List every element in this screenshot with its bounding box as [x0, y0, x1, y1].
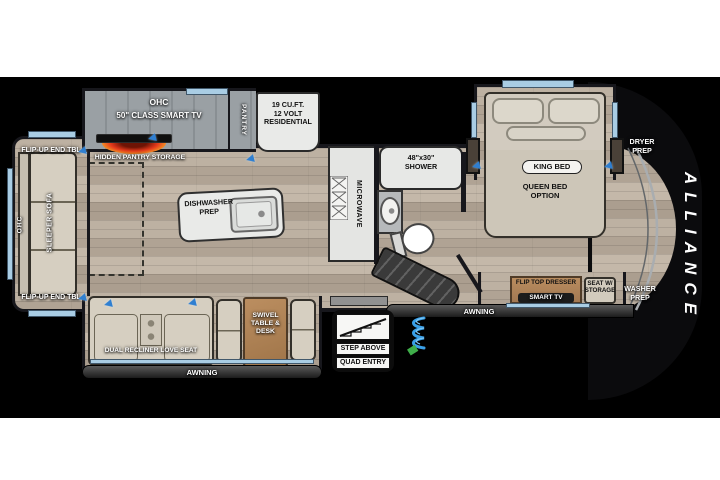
step-above-label: STEP ABOVE	[336, 343, 390, 355]
swivel-table-desk-label: SWIVEL TABLE & DESK	[243, 312, 288, 336]
window-above-kitchen	[186, 88, 228, 95]
window-bed-top	[502, 80, 574, 88]
bed-pillow-left	[492, 98, 544, 124]
step-diagram-icon	[336, 314, 390, 340]
shower-label: 48"x30" SHOWER	[381, 154, 461, 171]
window-living-slide	[90, 359, 314, 364]
refrigerator-label: 19 CU.FT. 12 VOLT RESIDENTIAL	[258, 101, 318, 127]
ohc-sofa-label: OHC	[17, 195, 30, 255]
step-entry-badge: STEP ABOVE QUAD ENTRY	[332, 310, 394, 372]
sleeper-sofa-label: SLEEPER SOFA	[47, 183, 60, 263]
ohc-tv-label: OHC	[84, 97, 234, 107]
queen-bed-option-label: QUEEN BED OPTION	[497, 182, 593, 200]
window-bed-right	[612, 102, 618, 138]
microwave-label: MICROWAVE	[350, 174, 366, 234]
recliner-console	[140, 314, 162, 346]
window-under-dresser	[506, 303, 590, 308]
flip-top-dresser-label: FLIP TOP DRESSER	[508, 279, 584, 287]
island-sink-basin	[235, 201, 272, 228]
floorplan-canvas: ALLIANCE OHC SLEEPER SOFA FLIP-UP END TB…	[0, 0, 720, 480]
power-cord-coil-icon	[402, 314, 434, 360]
bath-sink	[380, 197, 400, 225]
window-sofa-bottom	[28, 310, 76, 317]
dishwasher-prep-label: DISHWASHER PREP	[182, 198, 237, 218]
island-sink	[229, 196, 279, 233]
desk-chair-left	[216, 299, 242, 363]
desk-chair-right	[290, 299, 316, 361]
window-bed-left	[471, 102, 477, 138]
entry-door-threshold	[330, 296, 388, 306]
seat-with-storage-label: SEAT W/ STORAGE	[582, 280, 618, 295]
dryer-prep-label: DRYER PREP	[616, 138, 668, 155]
hidden-pantry-storage-label: HIDDEN PANTRY STORAGE	[80, 154, 200, 162]
smart-tv-label: SMART TV	[518, 294, 574, 302]
dual-recliner-label: DUAL RECLINER LOVE SEAT	[88, 347, 214, 355]
bed-bolster	[506, 126, 586, 141]
brand-logo: ALLIANCE	[678, 157, 700, 337]
bed-pillow-right	[548, 98, 600, 124]
window-sofa-top	[28, 131, 76, 138]
awning-bar-left: AWNING	[82, 365, 322, 379]
king-bed-badge: KING BED	[522, 160, 582, 174]
awning-left-label: AWNING	[83, 366, 321, 379]
quad-entry-label: QUAD ENTRY	[336, 357, 390, 369]
cooktop-stove	[330, 176, 348, 220]
window-sofa-left	[7, 168, 13, 280]
washer-prep-label: WASHER PREP	[612, 285, 668, 302]
tv-screen	[96, 134, 172, 143]
class-smart-tv-label: 50" CLASS SMART TV	[84, 111, 234, 121]
